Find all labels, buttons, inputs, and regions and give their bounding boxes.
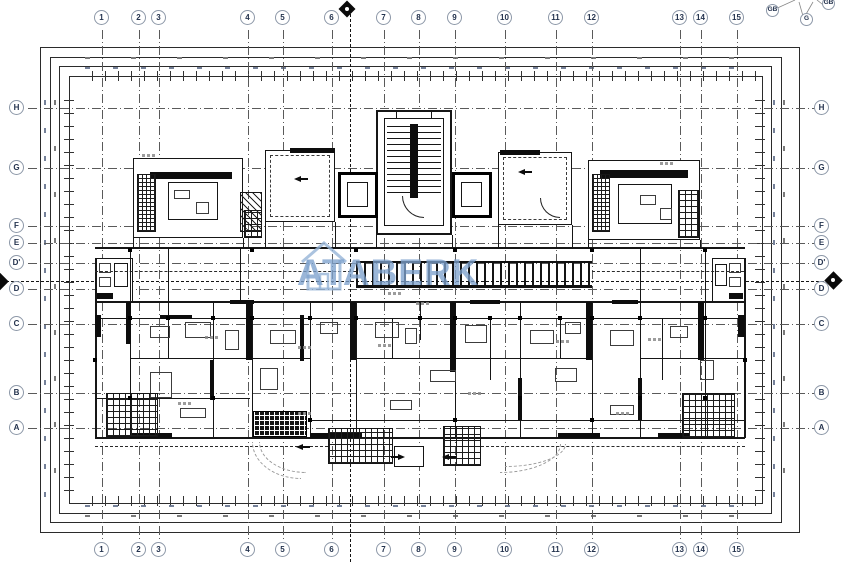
room-label-blob xyxy=(205,336,219,339)
furniture xyxy=(375,322,399,338)
column-marker xyxy=(250,316,254,320)
grid-col-line xyxy=(159,30,160,542)
room-label-blob xyxy=(648,338,662,341)
column-marker xyxy=(638,396,642,400)
heavy-wall xyxy=(230,300,254,304)
furniture xyxy=(99,277,111,287)
wall xyxy=(640,358,745,359)
column-marker xyxy=(488,316,492,320)
grid-bubble-col: 3 xyxy=(151,10,166,25)
grid-bubble-col: 13 xyxy=(672,542,687,557)
elevator-car xyxy=(461,182,482,207)
dimension-numbers xyxy=(85,505,745,507)
grid-bubble-col: 5 xyxy=(275,542,290,557)
column-marker xyxy=(518,396,522,400)
grid-bubble-col: 9 xyxy=(447,10,462,25)
floor-plan-sheet: 1 2 3 4 5 6 7 8 9 10 11 12 13 14 15 1 2 … xyxy=(0,0,850,566)
wall xyxy=(490,318,491,380)
room-label-blob xyxy=(378,344,392,347)
column-marker xyxy=(250,248,254,252)
heavy-wall xyxy=(350,302,356,360)
room-label-blob xyxy=(616,412,630,415)
furniture xyxy=(320,322,338,334)
grid-bubble-col: 10 xyxy=(497,10,512,25)
column-marker xyxy=(128,396,132,400)
column-marker xyxy=(166,316,170,320)
wall xyxy=(168,248,169,302)
furniture xyxy=(270,330,296,344)
wall xyxy=(560,318,561,358)
heavy-wall xyxy=(97,293,113,299)
column-marker xyxy=(93,358,97,362)
exit-arrow-icon xyxy=(442,454,449,460)
column-marker xyxy=(518,316,522,320)
grid-bubble-col: 15 xyxy=(729,542,744,557)
grid-bubble-col: 7 xyxy=(376,542,391,557)
wall xyxy=(420,302,421,340)
heavy-wall xyxy=(290,148,335,153)
grid-bubble-col: 12 xyxy=(584,10,599,25)
grid-bubble-col: 15 xyxy=(729,10,744,25)
grid-bubble-row: G xyxy=(9,160,24,175)
balcony-hatch xyxy=(244,210,262,238)
room-label-blob xyxy=(142,154,156,157)
column-marker xyxy=(128,248,132,252)
grid-bubble-col: 13 xyxy=(672,10,687,25)
room-label-blob xyxy=(468,392,482,395)
balcony-hatch xyxy=(443,426,481,466)
grid-bubble-row: A xyxy=(814,420,829,435)
grid-bubble-col: 8 xyxy=(411,10,426,25)
wall xyxy=(95,258,97,438)
heavy-wall xyxy=(300,315,304,361)
grid-col-line xyxy=(139,30,140,542)
grid-bubble-col: 14 xyxy=(693,10,708,25)
furniture xyxy=(530,330,554,344)
grid-bubble-col: 2 xyxy=(131,542,146,557)
furniture xyxy=(565,322,581,334)
grid-bubble-col: 1 xyxy=(94,10,109,25)
column-marker xyxy=(128,316,132,320)
grid-bubble-col: 6 xyxy=(324,542,339,557)
furniture xyxy=(640,195,656,205)
balcony-hatch xyxy=(137,174,156,232)
dimension-numbers xyxy=(44,100,46,500)
wall xyxy=(130,248,131,302)
wall xyxy=(705,248,706,302)
heavy-wall xyxy=(150,172,232,179)
grid-bubble-row: H xyxy=(9,100,24,115)
room-label-blob xyxy=(660,162,674,165)
grid-bubble-col: 3 xyxy=(151,542,166,557)
dimension-numbers xyxy=(85,515,745,517)
grid-bubble-col: 14 xyxy=(693,542,708,557)
wall xyxy=(130,358,310,359)
furniture xyxy=(465,325,487,343)
section-marker-icon xyxy=(0,272,9,290)
column-marker xyxy=(743,358,747,362)
heavy-wall xyxy=(450,302,456,372)
column-marker xyxy=(308,418,312,422)
room-label-blob xyxy=(298,412,312,415)
heavy-wall xyxy=(210,360,214,400)
corner-grid-bubble: G xyxy=(800,13,813,26)
wall xyxy=(452,235,453,248)
corner-grid-bubble: GB xyxy=(766,4,779,17)
grid-bubble-col: 12 xyxy=(584,542,599,557)
heavy-wall xyxy=(500,150,540,155)
grid-bubble-row: H xyxy=(814,100,829,115)
grid-bubble-row: G xyxy=(814,160,829,175)
grid-col-line xyxy=(592,30,593,542)
grid-bubble-row: D' xyxy=(9,255,24,270)
grid-bubble-col: 2 xyxy=(131,10,146,25)
heavy-wall xyxy=(126,302,131,344)
heavy-wall xyxy=(698,302,704,360)
grid-col-line xyxy=(701,30,702,542)
stair-stringer xyxy=(410,124,418,198)
furniture xyxy=(729,263,741,273)
dimension-numbers xyxy=(773,100,775,500)
grid-bubble-row: F xyxy=(9,218,24,233)
column-marker xyxy=(418,316,422,320)
heavy-wall xyxy=(246,302,252,360)
grid-bubble-col: 7 xyxy=(376,10,391,25)
room xyxy=(114,263,128,287)
column-marker xyxy=(703,396,707,400)
heavy-wall xyxy=(470,300,500,304)
furniture xyxy=(430,370,456,382)
furniture xyxy=(670,326,688,338)
dimension-numbers xyxy=(85,57,745,59)
wall xyxy=(588,240,589,248)
dimension-numbers xyxy=(783,100,785,500)
balcony-hatch xyxy=(678,190,699,238)
column-marker xyxy=(354,316,358,320)
grid-bubble-col: 10 xyxy=(497,542,512,557)
column-marker xyxy=(638,316,642,320)
wall xyxy=(95,247,745,249)
grid-bubble-col: 4 xyxy=(240,10,255,25)
heavy-wall xyxy=(738,315,745,337)
dimension-ticks xyxy=(64,88,74,502)
wall xyxy=(240,248,241,302)
column-marker xyxy=(590,316,594,320)
furniture xyxy=(260,368,278,390)
grid-bubble-row: A xyxy=(9,420,24,435)
entrance-arrow-icon xyxy=(518,169,525,175)
grid-bubble-col: 9 xyxy=(447,542,462,557)
column-marker xyxy=(211,316,215,320)
balcony-hatch xyxy=(106,393,158,437)
column-marker xyxy=(590,418,594,422)
grid-bubble-row: D' xyxy=(814,255,829,270)
furniture xyxy=(150,326,170,338)
heavy-wall xyxy=(95,315,101,337)
column-marker xyxy=(453,418,457,422)
room xyxy=(715,264,727,286)
grid-bubble-row: C xyxy=(9,316,24,331)
exit-arrow-icon xyxy=(296,444,303,450)
grid-bubble-row: E xyxy=(9,235,24,250)
grid-col-line xyxy=(248,30,249,542)
grid-bubble-col: 8 xyxy=(411,542,426,557)
watermark-text: ATABERK xyxy=(297,252,479,294)
section-marker-dot xyxy=(345,7,349,11)
wall xyxy=(572,225,573,248)
corridor-dashed-line xyxy=(592,271,744,272)
furniture xyxy=(405,328,417,344)
furniture xyxy=(660,208,672,220)
grid-row-line xyxy=(28,108,818,109)
heavy-wall xyxy=(160,315,192,319)
elevator-car xyxy=(347,182,368,207)
stair-landing xyxy=(396,111,432,119)
grid-bubble-row: D xyxy=(9,281,24,296)
wall xyxy=(744,258,746,438)
grid-bubble-col: 11 xyxy=(548,542,563,557)
room-label-blob xyxy=(298,346,312,349)
heavy-wall xyxy=(612,300,638,304)
wall xyxy=(265,222,266,248)
heavy-wall xyxy=(558,433,600,438)
room-label-blob xyxy=(556,340,570,343)
balcony-hatch xyxy=(682,393,735,438)
exit-arrow-icon xyxy=(398,454,405,460)
furniture xyxy=(225,330,239,350)
grid-bubble-col: 11 xyxy=(548,10,563,25)
column-marker xyxy=(703,248,707,252)
balcony-hatch xyxy=(592,174,610,232)
wall xyxy=(356,302,357,438)
wall xyxy=(376,235,377,248)
wall xyxy=(498,225,499,248)
grid-bubble-row: E xyxy=(814,235,829,250)
column-marker xyxy=(211,396,215,400)
furniture xyxy=(729,277,741,287)
heavy-wall xyxy=(729,293,743,299)
dimension-ticks xyxy=(80,71,768,81)
furniture xyxy=(390,400,412,410)
dimension-ticks xyxy=(755,88,765,502)
dimension-numbers xyxy=(54,100,56,500)
grid-bubble-row: F xyxy=(814,218,829,233)
furniture xyxy=(555,368,577,382)
wall xyxy=(700,240,701,248)
grid-bubble-col: 1 xyxy=(94,542,109,557)
grid-bubble-col: 6 xyxy=(324,10,339,25)
room-dashed-outline xyxy=(270,155,330,217)
entrance-arrow-icon xyxy=(294,176,301,182)
furniture xyxy=(700,360,714,380)
room-label-blob xyxy=(416,302,430,305)
wall xyxy=(133,238,134,248)
grid-col-line xyxy=(680,30,681,542)
grid-bubble-row: B xyxy=(814,385,829,400)
furniture xyxy=(99,263,111,273)
column-marker xyxy=(308,316,312,320)
wall xyxy=(356,358,592,359)
column-marker xyxy=(453,316,457,320)
column-marker xyxy=(590,248,594,252)
column-marker xyxy=(703,316,707,320)
wall xyxy=(662,318,663,380)
wall xyxy=(310,420,745,421)
wall xyxy=(640,248,641,302)
wall xyxy=(95,437,745,439)
grid-bubble-row: B xyxy=(9,385,24,400)
grid-bubble-col: 4 xyxy=(240,542,255,557)
dimension-numbers xyxy=(85,67,745,69)
wall xyxy=(243,238,244,248)
furniture xyxy=(180,408,206,418)
grid-bubble-row: C xyxy=(814,316,829,331)
balcony-hatch xyxy=(328,428,393,464)
furniture xyxy=(610,330,634,346)
heavy-wall xyxy=(586,302,592,360)
room xyxy=(168,182,218,220)
heavy-wall xyxy=(600,170,688,178)
furniture xyxy=(174,190,190,199)
room-label-blob xyxy=(178,402,192,405)
column-marker xyxy=(558,316,562,320)
grid-bubble-col: 5 xyxy=(275,10,290,25)
furniture xyxy=(196,202,209,214)
section-marker-dot xyxy=(831,278,835,282)
